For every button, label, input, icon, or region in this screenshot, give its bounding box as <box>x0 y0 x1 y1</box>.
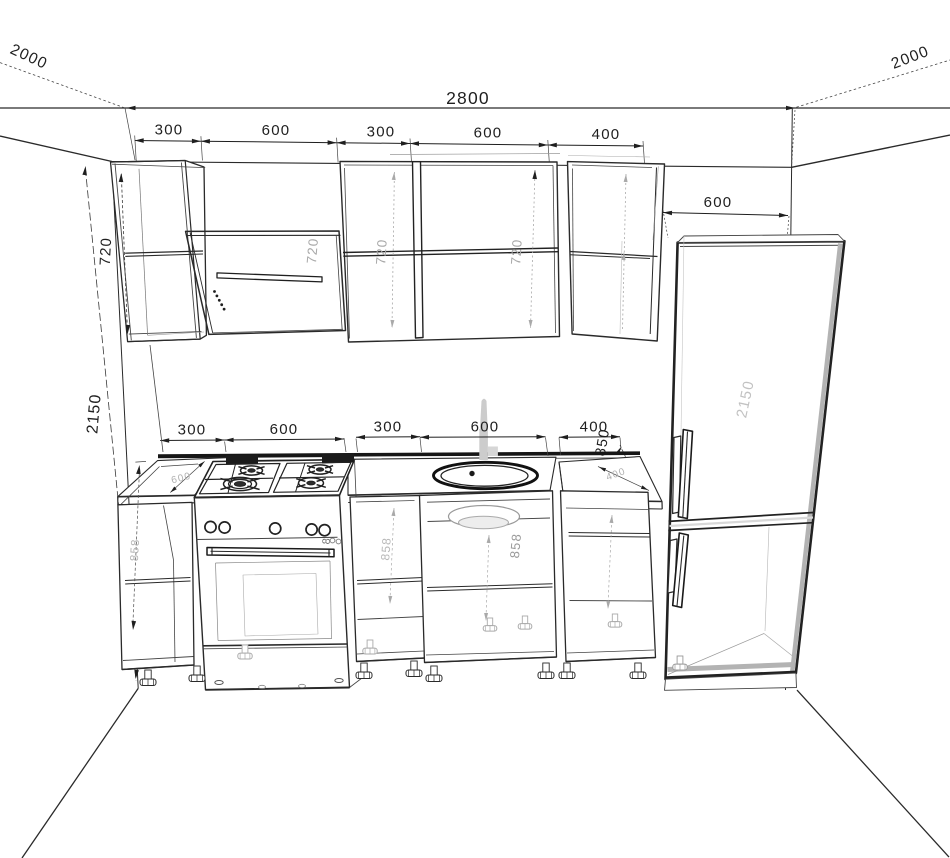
svg-text:300: 300 <box>155 122 184 139</box>
svg-text:720: 720 <box>373 238 390 265</box>
svg-text:400: 400 <box>580 419 609 436</box>
svg-text:600: 600 <box>471 419 500 436</box>
svg-text:400: 400 <box>592 126 621 143</box>
svg-text:720: 720 <box>304 237 321 264</box>
svg-text:600: 600 <box>270 421 299 438</box>
svg-text:720: 720 <box>508 238 525 265</box>
svg-text:720: 720 <box>97 237 115 266</box>
svg-text:858: 858 <box>129 538 142 561</box>
svg-text:300: 300 <box>367 124 396 141</box>
svg-text:300: 300 <box>178 422 207 439</box>
svg-text:858: 858 <box>507 532 524 559</box>
svg-text:8: 8 <box>321 537 334 545</box>
svg-text:2800: 2800 <box>446 88 490 108</box>
svg-text:600: 600 <box>474 125 503 142</box>
svg-text:600: 600 <box>262 122 291 139</box>
svg-text:2150: 2150 <box>84 393 104 435</box>
svg-text:300: 300 <box>374 419 403 436</box>
svg-text:858: 858 <box>378 536 394 561</box>
svg-text:600: 600 <box>704 194 733 211</box>
